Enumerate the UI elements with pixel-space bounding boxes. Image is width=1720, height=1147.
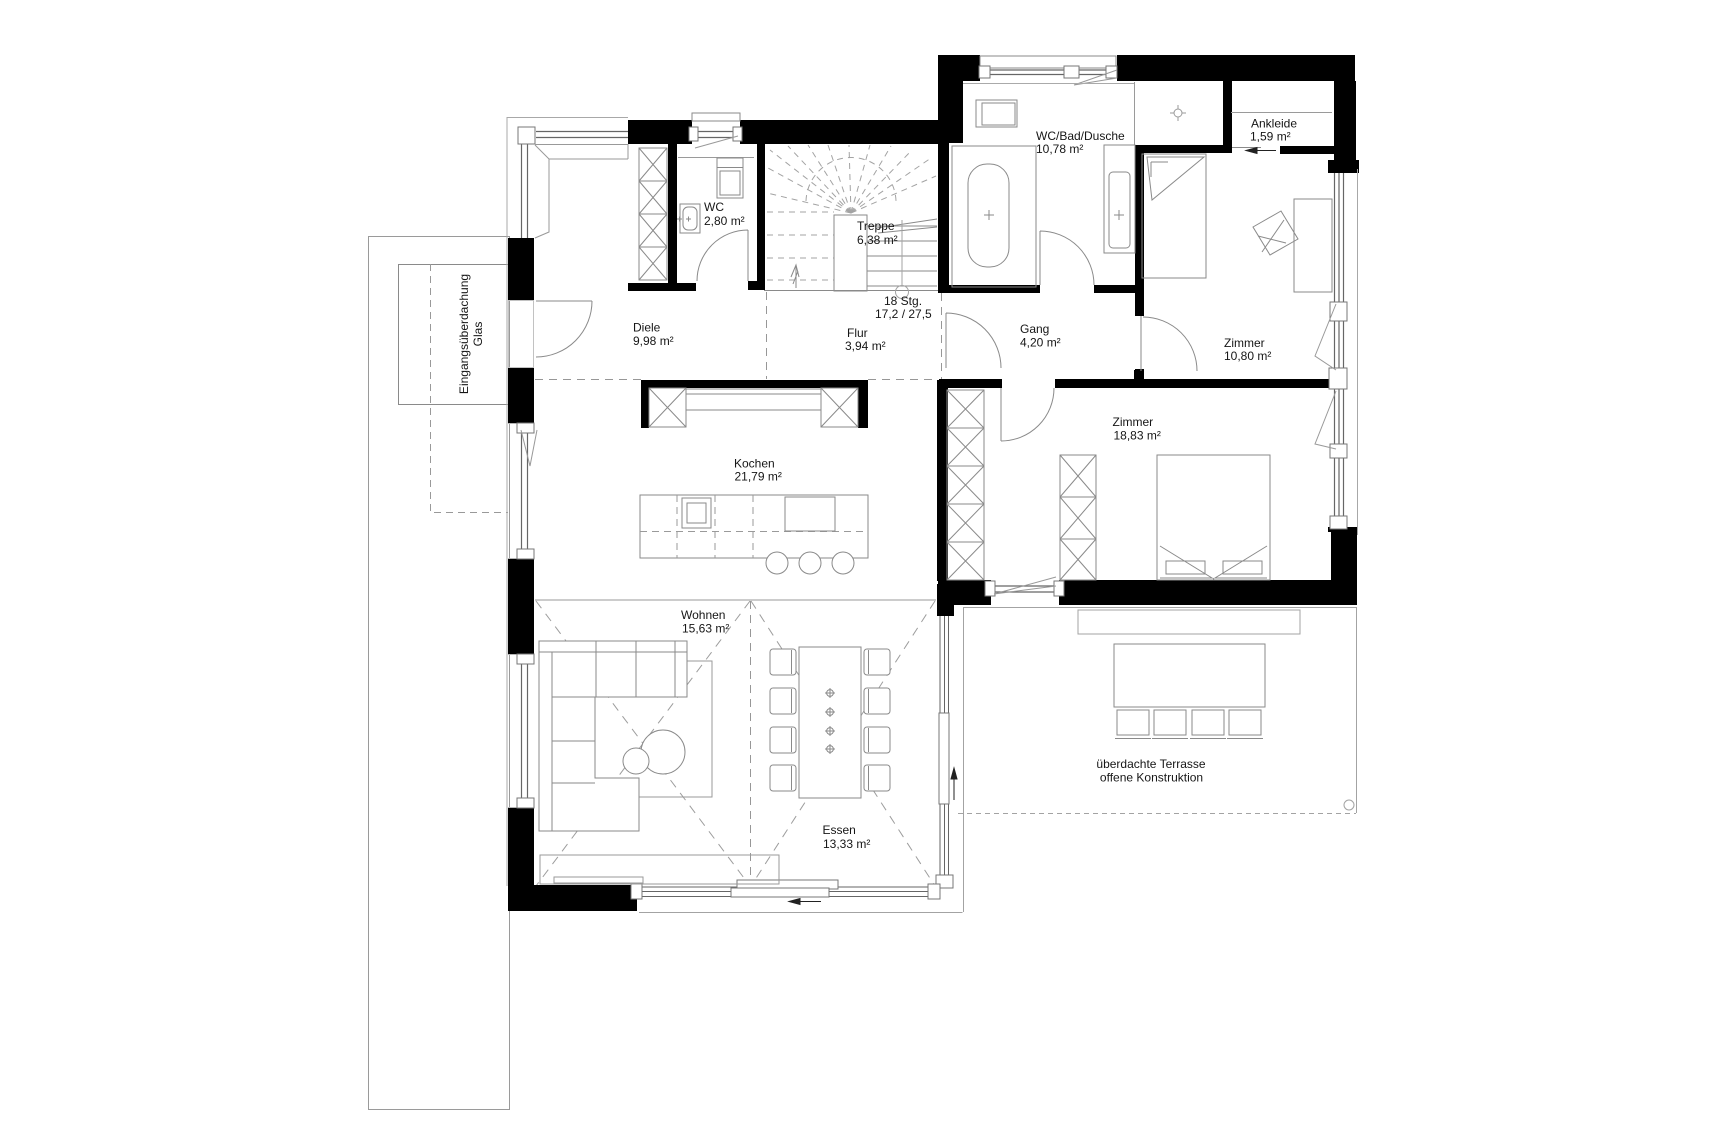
svg-text:2,80 m²: 2,80 m² bbox=[704, 214, 745, 228]
svg-text:18 Stg.: 18 Stg. bbox=[884, 294, 922, 308]
svg-text:Treppe: Treppe bbox=[857, 219, 895, 233]
svg-text:Ankleide: Ankleide bbox=[1251, 117, 1297, 131]
svg-text:Wohnen: Wohnen bbox=[681, 608, 725, 622]
svg-text:10,80 m²: 10,80 m² bbox=[1224, 349, 1271, 363]
svg-text:21,79 m²: 21,79 m² bbox=[735, 470, 782, 484]
svg-text:3,94 m²: 3,94 m² bbox=[845, 339, 886, 353]
svg-text:Zimmer: Zimmer bbox=[1113, 415, 1154, 429]
svg-text:Flur: Flur bbox=[847, 326, 868, 340]
svg-text:13,33 m²: 13,33 m² bbox=[823, 837, 870, 851]
svg-text:offene Konstruktion: offene Konstruktion bbox=[1100, 770, 1203, 784]
svg-text:4,20 m²: 4,20 m² bbox=[1020, 335, 1061, 349]
svg-text:9,98 m²: 9,98 m² bbox=[633, 334, 674, 348]
svg-text:15,63 m²: 15,63 m² bbox=[682, 621, 729, 635]
svg-text:18,83 m²: 18,83 m² bbox=[1114, 428, 1161, 442]
svg-text:Diele: Diele bbox=[633, 321, 661, 335]
svg-text:1,59 m²: 1,59 m² bbox=[1250, 130, 1291, 144]
svg-text:Gang: Gang bbox=[1020, 322, 1049, 336]
svg-text:10,78 m²: 10,78 m² bbox=[1036, 142, 1083, 156]
svg-text:Essen: Essen bbox=[823, 823, 856, 837]
svg-text:überdachte Terrasse: überdachte Terrasse bbox=[1096, 757, 1206, 771]
svg-text:Eingangsüberdachung: Eingangsüberdachung bbox=[457, 274, 471, 394]
svg-text:6,38 m²: 6,38 m² bbox=[857, 233, 898, 247]
svg-text:Kochen: Kochen bbox=[734, 457, 775, 471]
svg-text:Glas: Glas bbox=[471, 322, 485, 347]
svg-text:Zimmer: Zimmer bbox=[1224, 336, 1265, 350]
svg-text:17,2 / 27,5: 17,2 / 27,5 bbox=[875, 307, 932, 321]
svg-text:WC/Bad/Dusche: WC/Bad/Dusche bbox=[1036, 129, 1125, 143]
svg-text:WC: WC bbox=[704, 200, 724, 214]
